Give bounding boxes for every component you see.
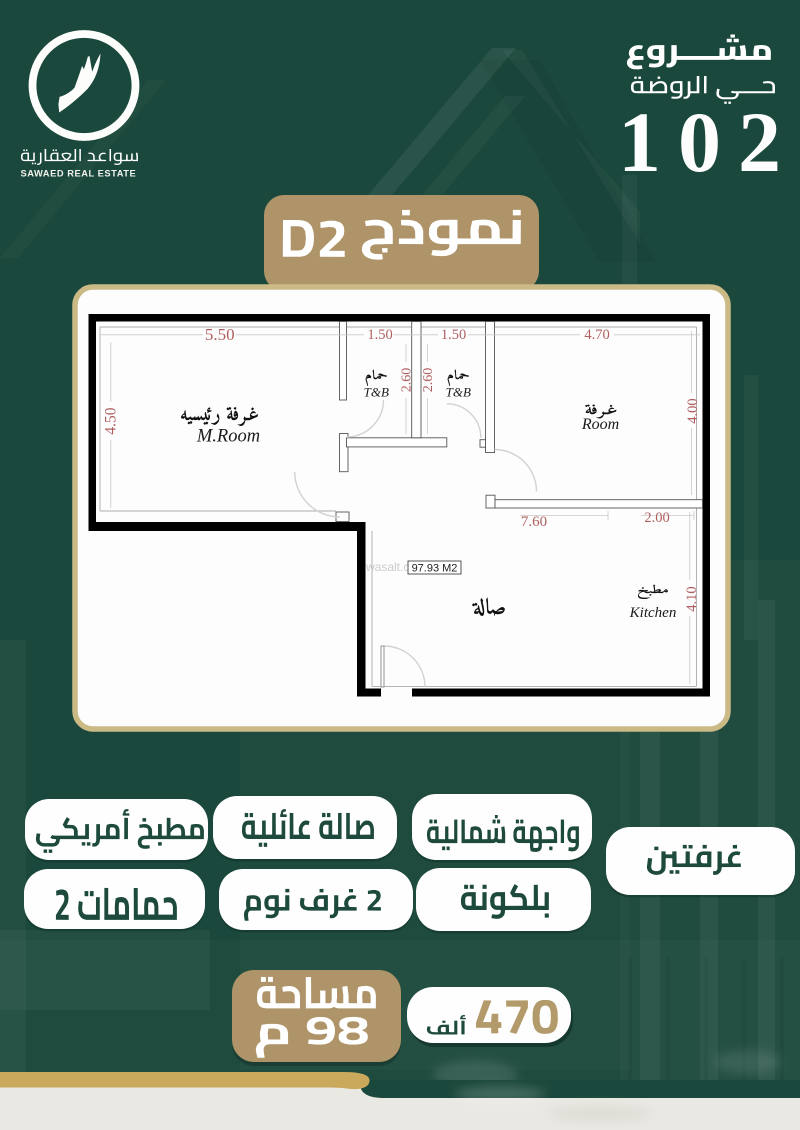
svg-text:7.60: 7.60 bbox=[521, 514, 547, 530]
svg-text:5.50: 5.50 bbox=[205, 325, 235, 344]
svg-text:2.60: 2.60 bbox=[421, 368, 436, 393]
svg-text:T&B: T&B bbox=[446, 385, 471, 400]
svg-text:2.60: 2.60 bbox=[400, 368, 415, 393]
svg-text:2.00: 2.00 bbox=[644, 510, 669, 526]
svg-text:4.50: 4.50 bbox=[103, 407, 120, 434]
svg-text:4.00: 4.00 bbox=[685, 398, 701, 423]
svg-text:M.Room: M.Room bbox=[196, 427, 260, 447]
svg-text:SAWAED REAL ESTATE: SAWAED REAL ESTATE bbox=[21, 169, 137, 179]
svg-text:1.50: 1.50 bbox=[441, 327, 466, 343]
svg-text:4.10: 4.10 bbox=[684, 586, 700, 611]
svg-text:T&B: T&B bbox=[364, 385, 389, 400]
svg-text:wasalt.c: wasalt.c bbox=[365, 560, 409, 574]
svg-text:Kitchen: Kitchen bbox=[629, 605, 677, 621]
svg-text:1.50: 1.50 bbox=[367, 327, 392, 343]
svg-text:4.70: 4.70 bbox=[584, 327, 609, 343]
svg-text:97.93 M2: 97.93 M2 bbox=[412, 563, 458, 575]
svg-text:102: 102 bbox=[618, 94, 798, 190]
